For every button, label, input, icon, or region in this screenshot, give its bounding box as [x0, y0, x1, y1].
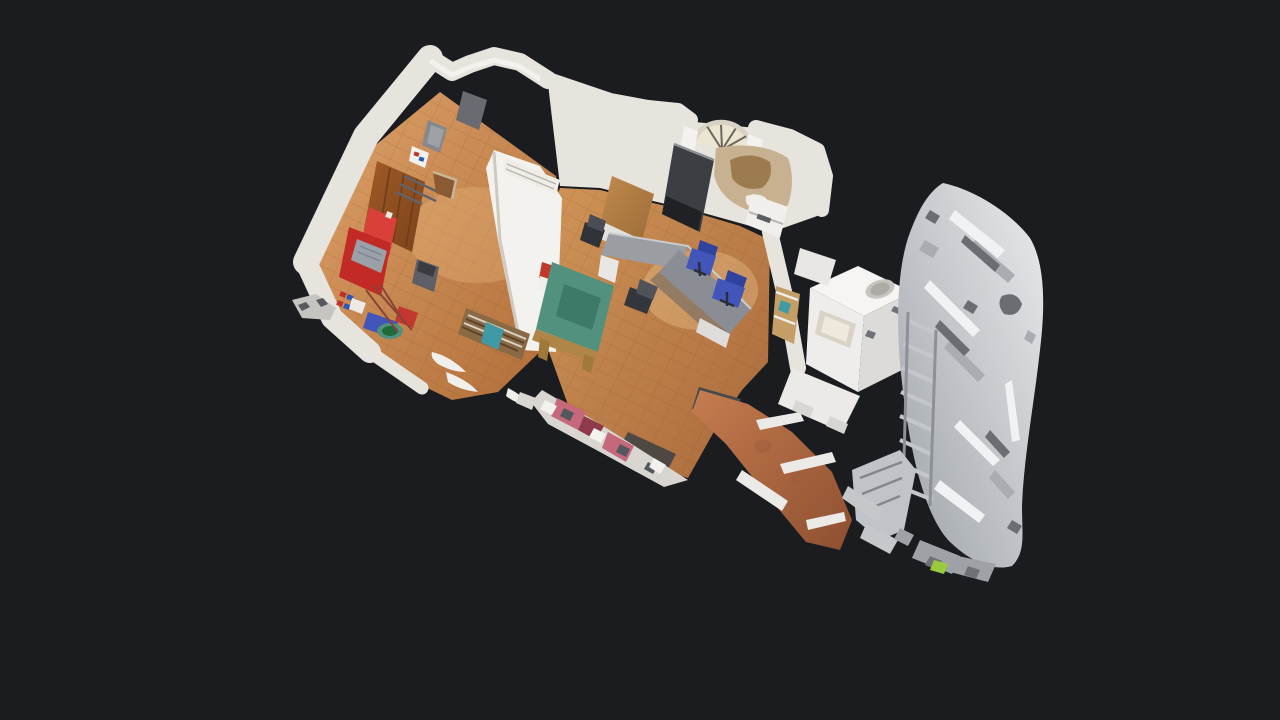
dollhouse-3d-viewport[interactable] [0, 0, 1280, 720]
scan-render-canvas [0, 0, 1280, 720]
